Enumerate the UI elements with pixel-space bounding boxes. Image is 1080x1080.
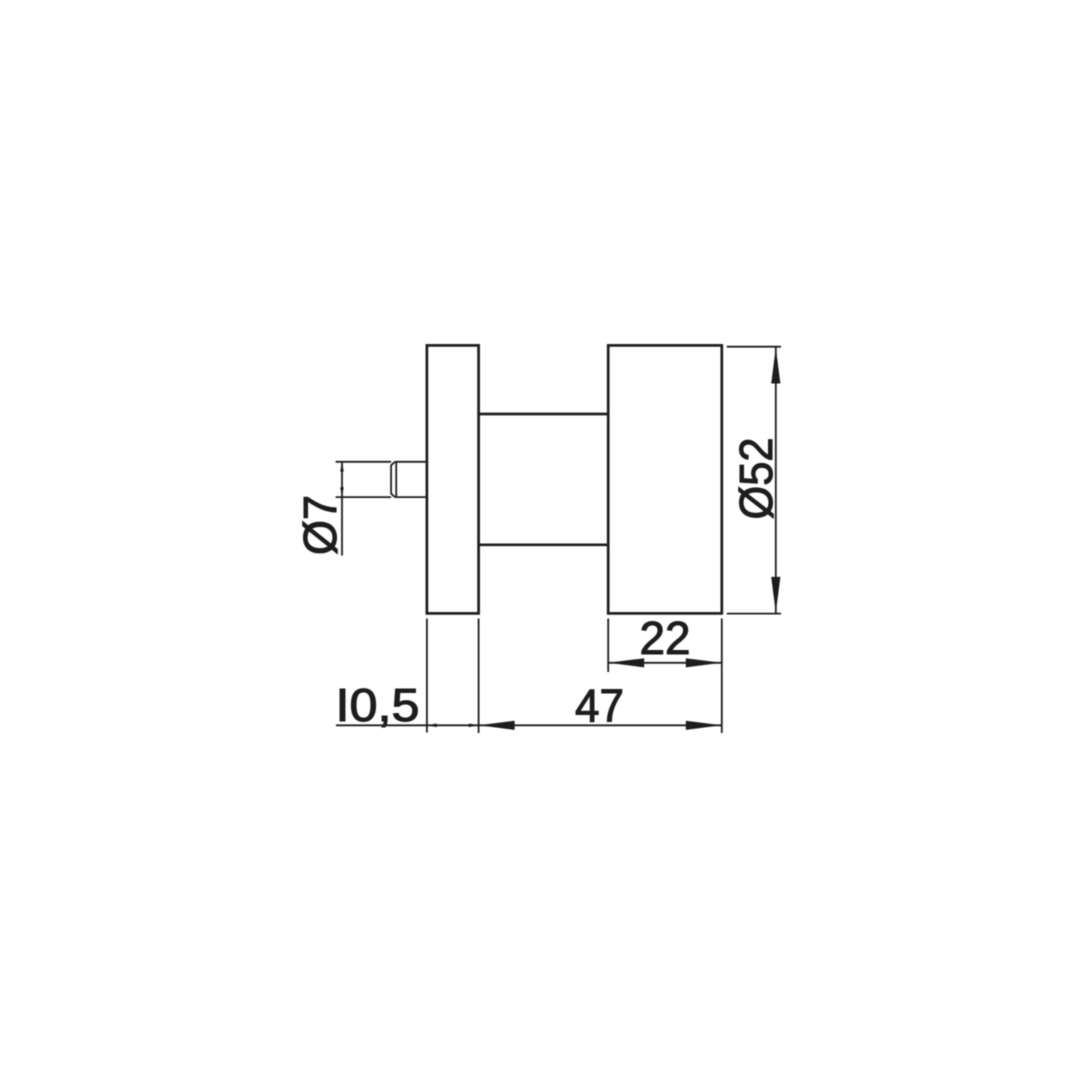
svg-text:Ø52: Ø52 [730,438,782,520]
svg-text:I0,5: I0,5 [336,679,420,731]
svg-text:47: 47 [575,680,624,732]
svg-text:Ø7: Ø7 [294,495,346,555]
svg-text:22: 22 [640,612,691,664]
